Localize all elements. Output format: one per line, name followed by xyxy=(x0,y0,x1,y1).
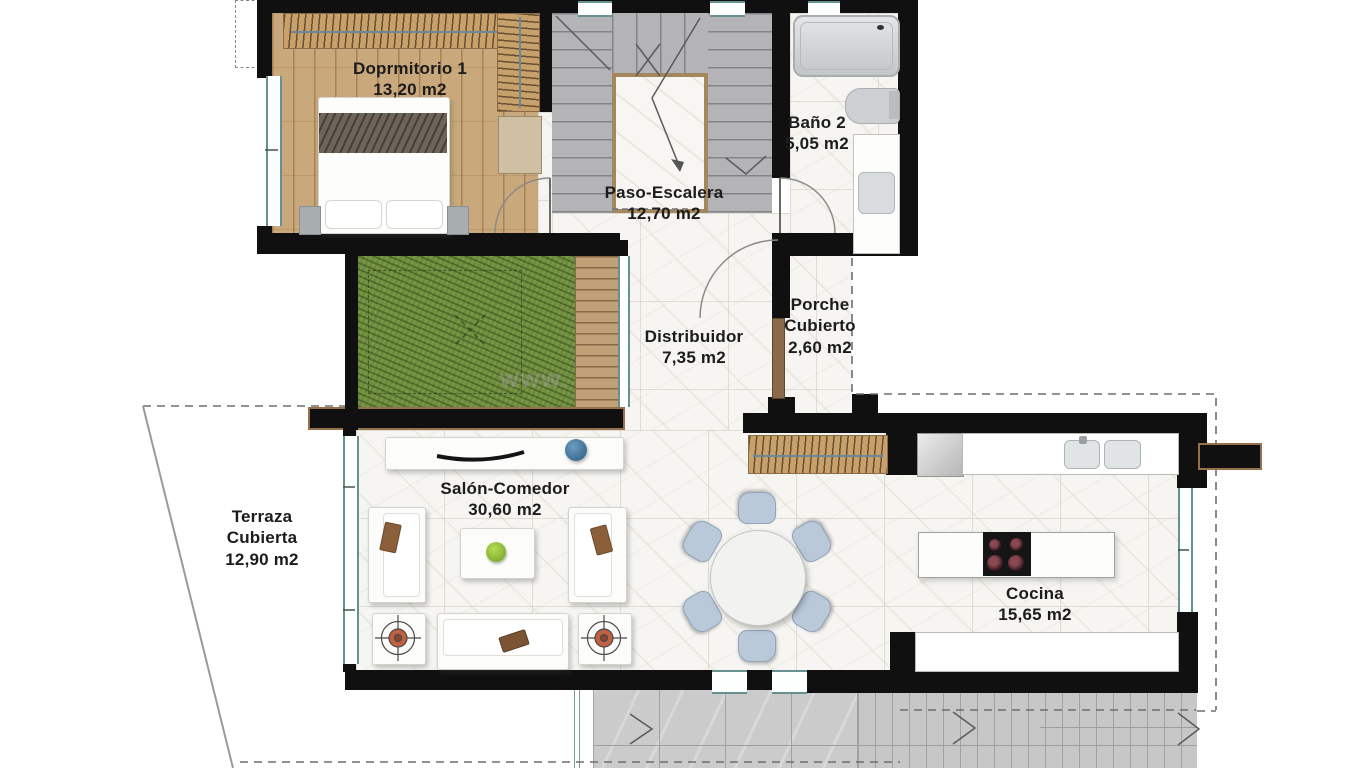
bathtub-drain xyxy=(877,25,884,30)
room-label-dormitorio-1: Doprmitorio 1 13,20 m2 xyxy=(310,58,510,101)
stairs-window-2 xyxy=(710,1,745,17)
kitchen-sink-2 xyxy=(1104,440,1141,469)
kitchen-counter-bottom xyxy=(915,632,1179,672)
decking-joint-line xyxy=(593,745,1197,746)
decor-bowl xyxy=(565,439,587,461)
burner-2 xyxy=(1010,538,1023,551)
decking-joint-line-2 xyxy=(1040,727,1197,728)
bathroom-sink xyxy=(858,172,895,214)
room-label-bano-2: Baño 2 5,05 m2 xyxy=(762,112,872,155)
floor-plan-canvas: Doprmitorio 1 13,20 m2 Baño 2 5,05 m2 Pa… xyxy=(0,0,1366,768)
wardrobe-rail xyxy=(291,31,523,33)
room-area: 5,05 m2 xyxy=(762,133,872,154)
bed-pillow-left xyxy=(325,200,382,229)
dining-table xyxy=(710,530,806,626)
wall-window-cap-bottom xyxy=(343,664,356,672)
apple-decor xyxy=(486,542,506,562)
kitchen-faucet xyxy=(1079,436,1087,444)
room-label-paso-escalera: Paso-Escalera 12,70 m2 xyxy=(574,182,754,225)
armchair-left xyxy=(372,613,426,665)
stairs-window-1 xyxy=(578,1,612,17)
wall-bedroom-stairs-divider xyxy=(538,13,552,112)
tv-cabinet xyxy=(385,437,624,470)
wall-kitchen-pillar-right xyxy=(1177,612,1198,693)
room-area: 2,60 m2 xyxy=(776,337,864,358)
wall-stub-right xyxy=(1198,443,1262,470)
bed xyxy=(318,97,450,234)
room-label-porche-cubierto: Porche Cubierto 2,60 m2 xyxy=(776,294,864,358)
rear-terrace-decking xyxy=(858,690,1197,768)
bedroom-window xyxy=(266,76,282,226)
bed-blanket xyxy=(319,113,447,153)
kitchen-window xyxy=(1178,488,1193,612)
cooktop xyxy=(983,532,1031,576)
rear-terrace-tiles xyxy=(593,690,858,768)
room-area: 30,60 m2 xyxy=(395,499,615,520)
bathtub xyxy=(793,15,900,77)
kitchen-sink-1 xyxy=(1064,440,1100,469)
nightstand-left xyxy=(299,206,321,235)
armchair-right xyxy=(578,613,632,665)
dining-chair-bottom xyxy=(738,630,776,662)
room-label-salon-comedor: Salón-Comedor 30,60 m2 xyxy=(395,478,615,521)
room-area: 12,90 m2 xyxy=(207,549,317,570)
room-name: Salón-Comedor xyxy=(395,478,615,499)
room-name: Porche Cubierto xyxy=(776,294,864,337)
pantry-rail xyxy=(753,455,883,457)
wall-kitchen-top-corner xyxy=(852,394,878,433)
wall-living-bottom-left xyxy=(345,670,712,690)
bedroom-bench xyxy=(498,116,542,174)
rear-window-2 xyxy=(772,670,807,694)
terrace-edge-line xyxy=(574,690,575,768)
room-name: Doprmitorio 1 xyxy=(310,58,510,79)
watermark: www. xyxy=(500,366,570,394)
sofa-left xyxy=(368,507,426,603)
room-label-terraza-cubierta: Terraza Cubierta 12,90 m2 xyxy=(207,506,317,570)
wall-window-cap-top xyxy=(343,428,356,436)
bed-pillow-right xyxy=(386,200,443,229)
living-room-window xyxy=(343,436,359,664)
room-name: Terraza Cubierta xyxy=(207,506,317,549)
burner-3 xyxy=(987,555,1003,571)
room-area: 13,20 m2 xyxy=(310,79,510,100)
wall-garden-left xyxy=(345,240,358,430)
room-name: Distribuidor xyxy=(599,326,789,347)
room-name: Cocina xyxy=(950,583,1120,604)
closet-rail xyxy=(519,17,521,108)
dining-chair-top xyxy=(738,492,776,524)
wall-kitchen-pillar-left xyxy=(890,632,915,670)
toilet-tank xyxy=(889,91,899,119)
wardrobe xyxy=(283,13,532,49)
wall-kitchen-fridge-divider xyxy=(886,433,917,475)
nightstand-right xyxy=(447,206,469,235)
wall-bathroom-right xyxy=(898,0,918,256)
room-area: 12,70 m2 xyxy=(574,203,754,224)
room-label-cocina: Cocina 15,65 m2 xyxy=(950,583,1120,626)
burner-4 xyxy=(1008,555,1024,571)
terrace-edge-line-2 xyxy=(579,690,580,768)
garden-dashed-outline xyxy=(368,270,522,394)
wall-living-bottom-right xyxy=(807,670,1198,693)
stairs-top-flight xyxy=(612,13,708,73)
fridge xyxy=(917,433,964,477)
room-area: 15,65 m2 xyxy=(950,604,1120,625)
room-name: Paso-Escalera xyxy=(574,182,754,203)
wall-living-bottom-mid xyxy=(747,670,772,690)
wall-kitchen-top xyxy=(743,413,1207,433)
wall-bedroom-left-upper xyxy=(257,0,272,78)
room-area: 7,35 m2 xyxy=(599,347,789,368)
kitchen-pantry xyxy=(748,435,888,474)
room-label-distribuidor: Distribuidor 7,35 m2 xyxy=(599,326,789,369)
wall-garden-top xyxy=(345,240,628,256)
rear-window-1 xyxy=(712,670,747,694)
room-name: Baño 2 xyxy=(762,112,872,133)
burner-1 xyxy=(989,539,1001,551)
